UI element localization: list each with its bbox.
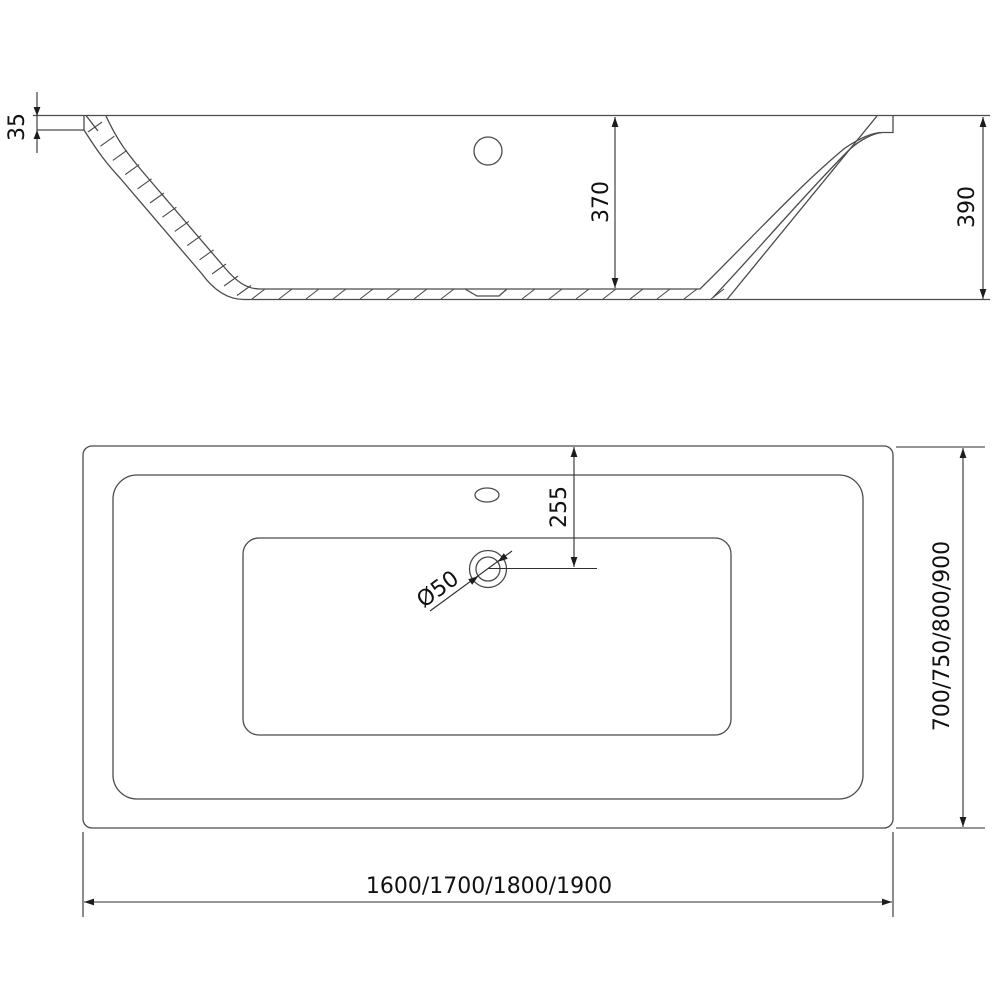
dim-width-options: 700/750/800/900 — [896, 447, 985, 828]
section-right-skirt — [727, 116, 877, 300]
tub-basin-edge — [243, 538, 731, 735]
dim-arrow — [34, 107, 41, 116]
dim-arrow — [612, 278, 619, 288]
dim-inner-depth-label: 370 — [589, 181, 614, 223]
dim-arrow — [84, 899, 94, 906]
section-drain-recess — [465, 289, 507, 296]
technical-drawing: 35 370 390 — [0, 0, 1000, 1000]
section-rim-endcap — [84, 116, 98, 132]
dim-arrow — [34, 130, 41, 139]
dim-length-options: 1600/1700/1800/1900 — [83, 832, 893, 917]
dim-arrow — [571, 557, 578, 567]
dim-drain-diameter-label: Ø50 — [413, 566, 464, 613]
dim-arrow — [571, 447, 578, 457]
section-right-wall — [713, 133, 882, 298]
dim-arrow — [960, 817, 967, 827]
dim-total-height-label: 390 — [955, 186, 980, 228]
section-outer-surface — [84, 130, 990, 300]
section-rim-step — [882, 116, 893, 133]
section-inner-surface — [106, 116, 882, 289]
dim-rim-thickness: 35 — [5, 92, 40, 153]
dim-inner-depth: 370 — [589, 117, 618, 288]
dim-arrow — [980, 289, 987, 299]
drawing-svg: 35 370 390 — [0, 0, 1000, 1000]
dim-arrow — [612, 117, 619, 127]
dim-rim-thickness-label: 35 — [5, 113, 30, 141]
dim-arrow — [980, 117, 987, 127]
plan-view: 255 Ø50 700/750/800/900 — [83, 446, 985, 917]
overflow-hole-plan — [475, 488, 499, 502]
section-floor-hatching — [252, 289, 724, 299]
dim-arrow — [960, 448, 967, 458]
dim-width-options-label: 700/750/800/900 — [930, 541, 955, 731]
dim-drain-offset-label: 255 — [547, 486, 572, 528]
dim-drain-offset: 255 — [488, 447, 597, 569]
overflow-hole-section — [474, 137, 502, 165]
tub-outer-edge — [83, 446, 893, 828]
dim-length-options-label: 1600/1700/1800/1900 — [366, 874, 612, 899]
dim-total-height: 390 — [955, 117, 986, 299]
section-view: 35 370 390 — [5, 92, 990, 300]
dim-arrow — [882, 899, 892, 906]
tub-rim-inner-edge — [113, 475, 863, 799]
